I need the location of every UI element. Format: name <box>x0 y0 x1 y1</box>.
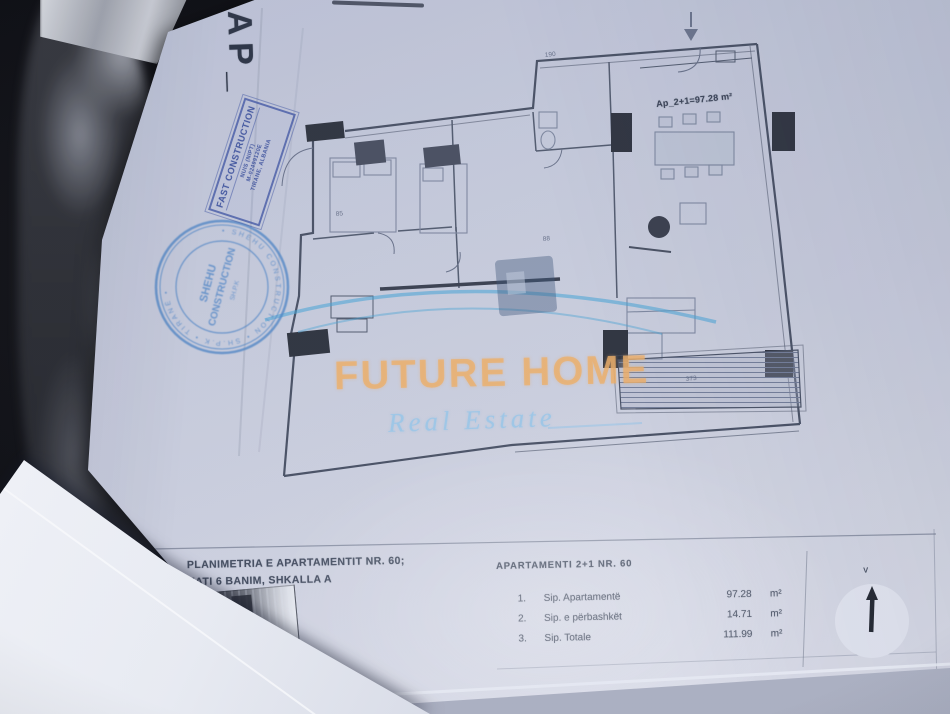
photo-stage: 85 88 190 373 <box>0 0 950 714</box>
overlap-sheet-fold <box>0 470 320 714</box>
overlap-sheet-wrap <box>0 0 950 714</box>
overlap-sheet <box>0 0 950 714</box>
